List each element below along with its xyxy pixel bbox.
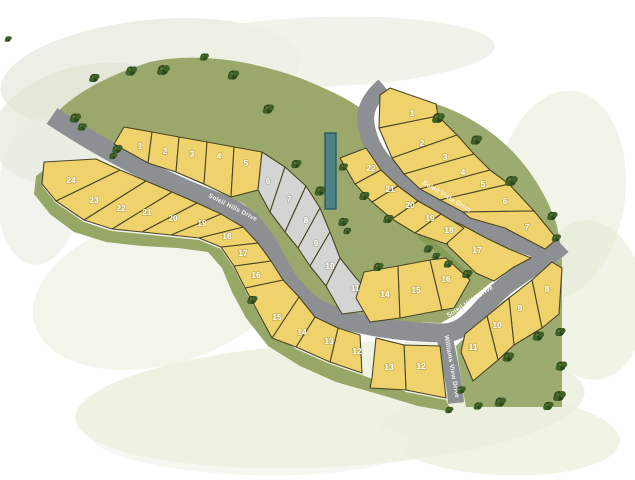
lot-number: 21 <box>142 207 152 217</box>
lot-number: 1 <box>138 141 143 151</box>
lot-number: 17 <box>472 245 482 255</box>
lot-number: 7 <box>287 194 292 204</box>
lot-number: 4 <box>461 167 466 177</box>
lot-number: 18 <box>222 231 232 241</box>
water-feature-icon <box>325 133 336 209</box>
lot-number: 15 <box>272 312 282 322</box>
lot-number: 20 <box>405 200 415 210</box>
lot-west-5[interactable] <box>231 147 262 197</box>
lot-number: 23 <box>89 195 99 205</box>
lot-number: 8 <box>304 215 309 225</box>
lot-number: 14 <box>297 327 307 337</box>
lot-number: 16 <box>251 270 261 280</box>
lot-number: 10 <box>325 261 335 271</box>
lot-number: 1 <box>410 108 415 118</box>
lot-number: 21 <box>385 184 395 194</box>
lot-number: 15 <box>411 285 421 295</box>
lot-number: 10 <box>492 320 502 330</box>
lot-number: 18 <box>444 225 454 235</box>
site-plan-canvas: Soleil Hills DriveSoleil Hills DriveSole… <box>0 0 635 480</box>
lot-number: 22 <box>366 163 376 173</box>
lot-number: 16 <box>441 274 451 284</box>
lot-number: 7 <box>525 222 530 232</box>
lot-number: 2 <box>420 138 425 148</box>
site-plan-viewer: Soleil Hills DriveSoleil Hills DriveSole… <box>0 0 635 480</box>
lot-number: 13 <box>324 336 334 346</box>
lot-number: 2 <box>163 146 168 156</box>
lot-number: 3 <box>443 152 448 162</box>
lot-number: 24 <box>66 175 76 185</box>
lot-number: 5 <box>481 179 486 189</box>
lot-number: 12 <box>416 361 426 371</box>
lot-number: 6 <box>266 176 271 186</box>
lot-number: 11 <box>469 342 478 352</box>
lot-number: 13 <box>384 362 394 372</box>
lot-number: 11 <box>351 283 360 293</box>
lot-number: 14 <box>380 289 390 299</box>
lot-number: 12 <box>352 346 362 356</box>
lot-number: 6 <box>503 196 508 206</box>
water-feature <box>325 133 336 209</box>
lot-number: 3 <box>190 149 195 159</box>
lot-number: 17 <box>238 248 248 258</box>
lot-number: 5 <box>244 158 249 168</box>
tree-icon <box>5 36 12 42</box>
lot-number: 9 <box>314 238 319 248</box>
lot-number: 8 <box>545 284 550 294</box>
lot-number: 9 <box>518 303 523 313</box>
lot-number: 4 <box>217 151 222 161</box>
lot-east-12[interactable] <box>404 345 446 398</box>
lot-number: 20 <box>168 213 178 223</box>
lot-number: 19 <box>425 213 435 223</box>
lot-number: 22 <box>116 203 126 213</box>
lot-number: 19 <box>197 218 207 228</box>
